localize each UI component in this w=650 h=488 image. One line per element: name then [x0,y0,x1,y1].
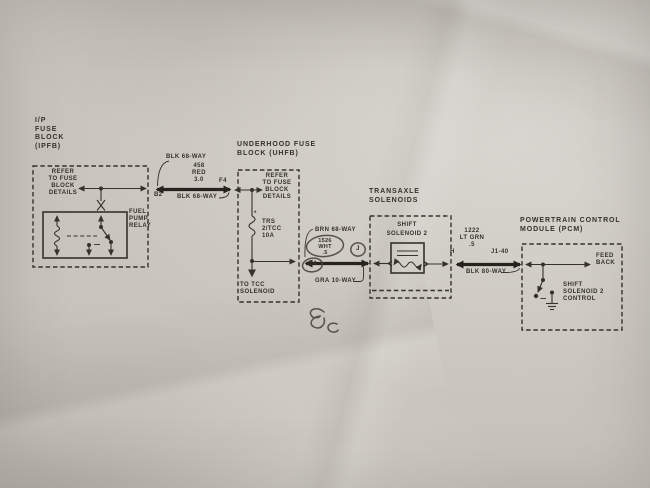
pin-b4: B4 [305,261,320,268]
solenoid-coil [394,262,421,267]
relay-switch-arm [101,227,110,240]
wire1-circuit-label: 458 RED 3.0 [186,163,212,184]
shift-solenoid-2-control-label: SHIFT SOLENOID 2 CONTROL [563,282,604,303]
pin-f4: F4 [219,178,227,185]
connector-chevron [97,206,105,211]
to-tcc-solenoid-note: TO TCC SOLENOID [240,282,275,296]
label-leader [158,161,170,186]
inline-connector-j: J [355,246,362,253]
feedback-label: FEED BACK [596,253,615,267]
pcm-driver-switch [538,280,543,292]
shift-solenoid-2-symbol [391,243,424,273]
wire2-circuit-label: 1526 WHT .5 [313,238,337,256]
fuse-footnote-asterisk: * [254,211,257,218]
shift-solenoid-2-label: SHIFT SOLENOID 2 [382,221,432,239]
uhfb-title: UNDERHOOD FUSE BLOCK (UHFB) [237,141,316,158]
transaxle-title: TRANSAXLE SOLENOIDS [369,188,420,205]
pin-b2: B2 [154,192,163,199]
fuel-pump-relay-label: FUEL PUMP RELAY [129,209,151,230]
wire2-top-label: BRN 68-WAY [315,227,356,234]
pin-h: H [450,249,455,256]
ipfb-refer-note: REFER TO FUSE BLOCK DETAILS [41,169,85,197]
wire3-circuit-label: 1222 LT GRN .5 [459,228,485,249]
wire3-bottom-label: BLK 80-WAY [466,269,506,276]
photographed-wiring-diagram: I/P FUSE BLOCK (IPFB) REFER TO FUSE BLOC… [0,0,650,488]
uhfb-refer-note: REFER TO FUSE BLOCK DETAILS [260,173,294,201]
ground-symbol [546,304,558,310]
handwritten-note [310,309,338,332]
relay-coil [55,226,60,246]
wire1-top-label: BLK 68-WAY [166,154,206,161]
fuse-label: TRS 2/TCC 10A [262,219,282,240]
fuse-symbol [249,216,255,236]
wire1-bottom-label: BLK 68-WAY [177,194,217,201]
label-leader [219,193,229,199]
fuel-pump-relay-symbol [43,212,127,258]
pin-j1-40: J1-40 [491,249,509,256]
wire2-bottom-label: GRA 10-WAY [315,278,356,285]
ipfb-title: I/P FUSE BLOCK (IPFB) [35,117,64,151]
pcm-title: POWERTRAIN CONTROL MODULE (PCM) [520,217,621,234]
